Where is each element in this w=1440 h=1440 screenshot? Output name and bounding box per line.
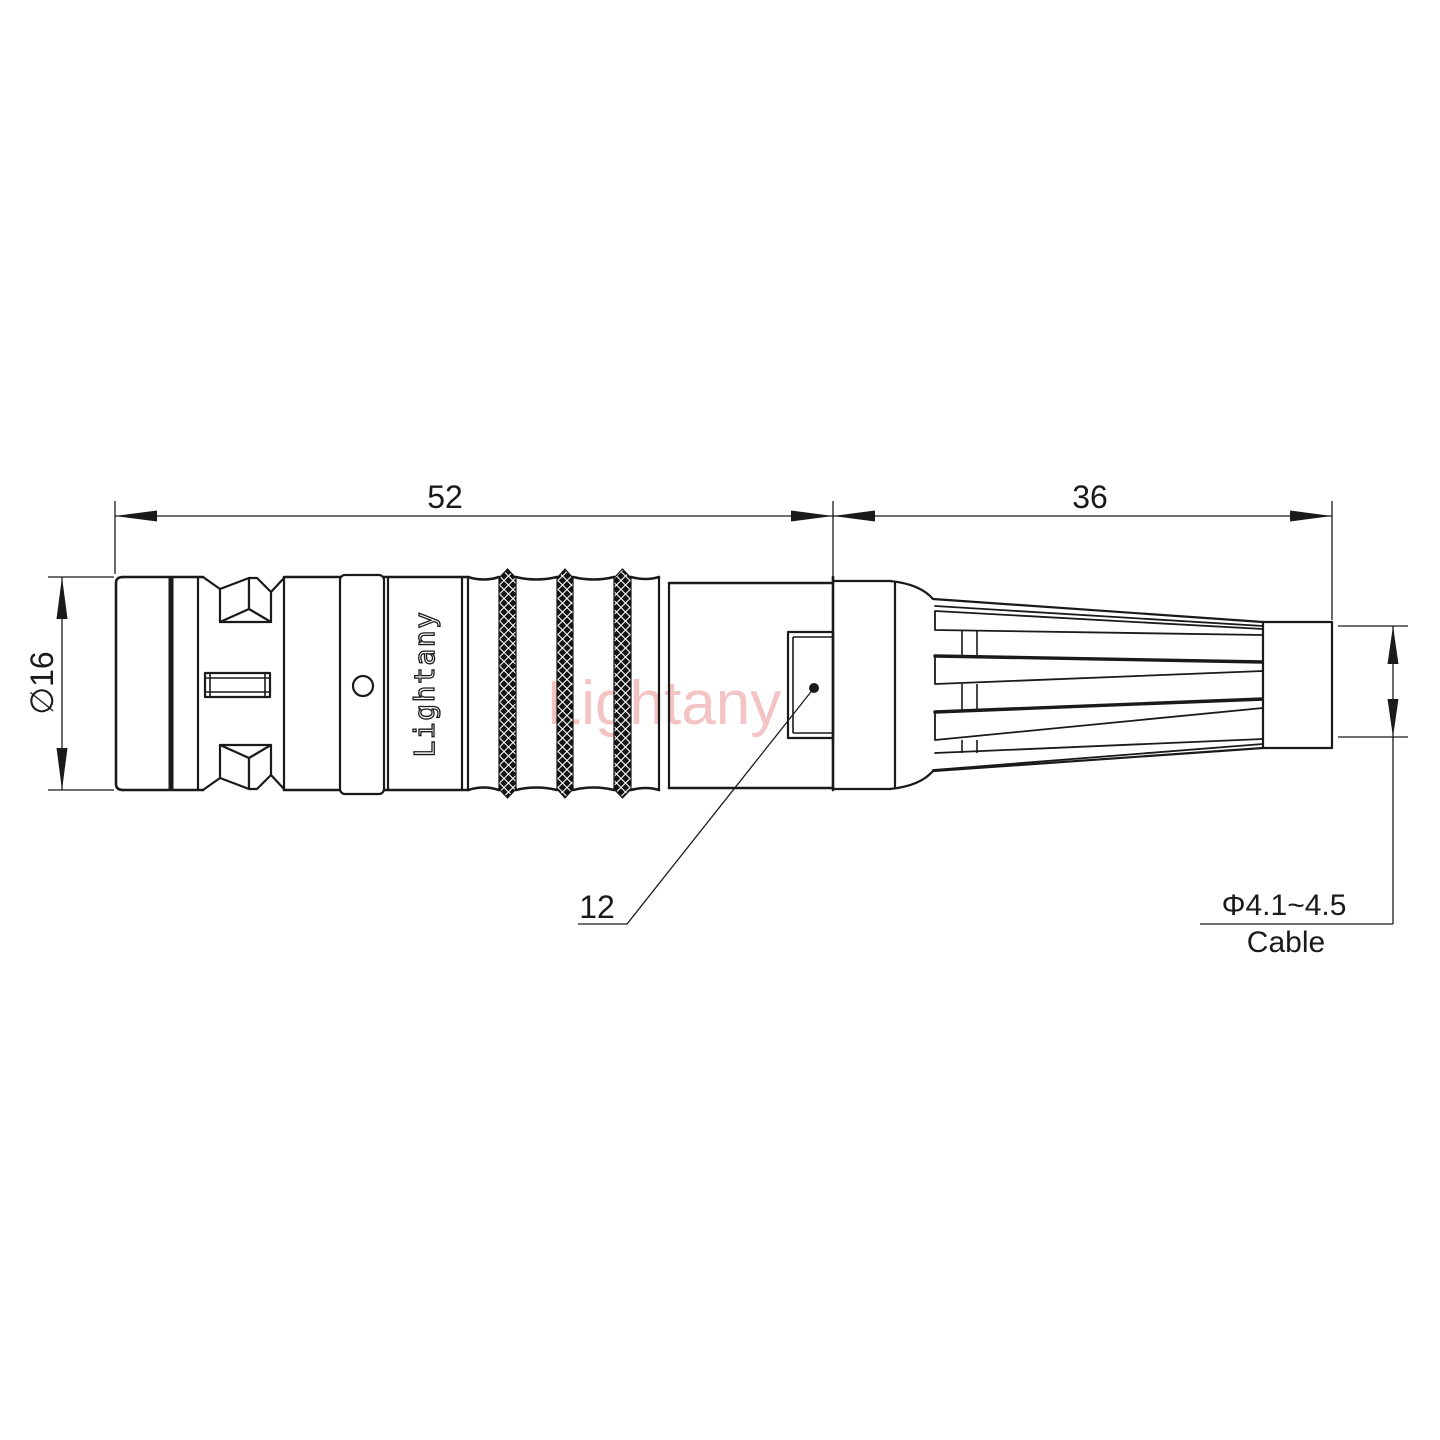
- dim-latch-window-text: 12: [579, 889, 615, 925]
- collar-body: [340, 575, 384, 794]
- dim-cable-caption-text: Cable: [1247, 926, 1325, 959]
- cable-ferrule: [1263, 622, 1332, 748]
- leader-dot: [809, 683, 819, 693]
- dim-cable-diameter-text: Φ4.1~4.5: [1222, 889, 1347, 922]
- knurl-band-2: [557, 569, 573, 798]
- technical-drawing-page: Lightany Light: [0, 0, 1440, 1440]
- knurl-band-3: [614, 569, 631, 798]
- brand-text: Lightany: [408, 611, 441, 758]
- connector-technical-drawing: Lightany Light: [0, 0, 1440, 1440]
- knurl-band-1: [499, 569, 516, 798]
- watermark-text: Lightany: [547, 669, 781, 738]
- dim-boot-length-text: 36: [1072, 479, 1108, 515]
- collar-ring: [340, 575, 384, 794]
- dim-shell-diameter-text: ∅16: [24, 651, 60, 714]
- dim-body-length-text: 52: [427, 479, 463, 515]
